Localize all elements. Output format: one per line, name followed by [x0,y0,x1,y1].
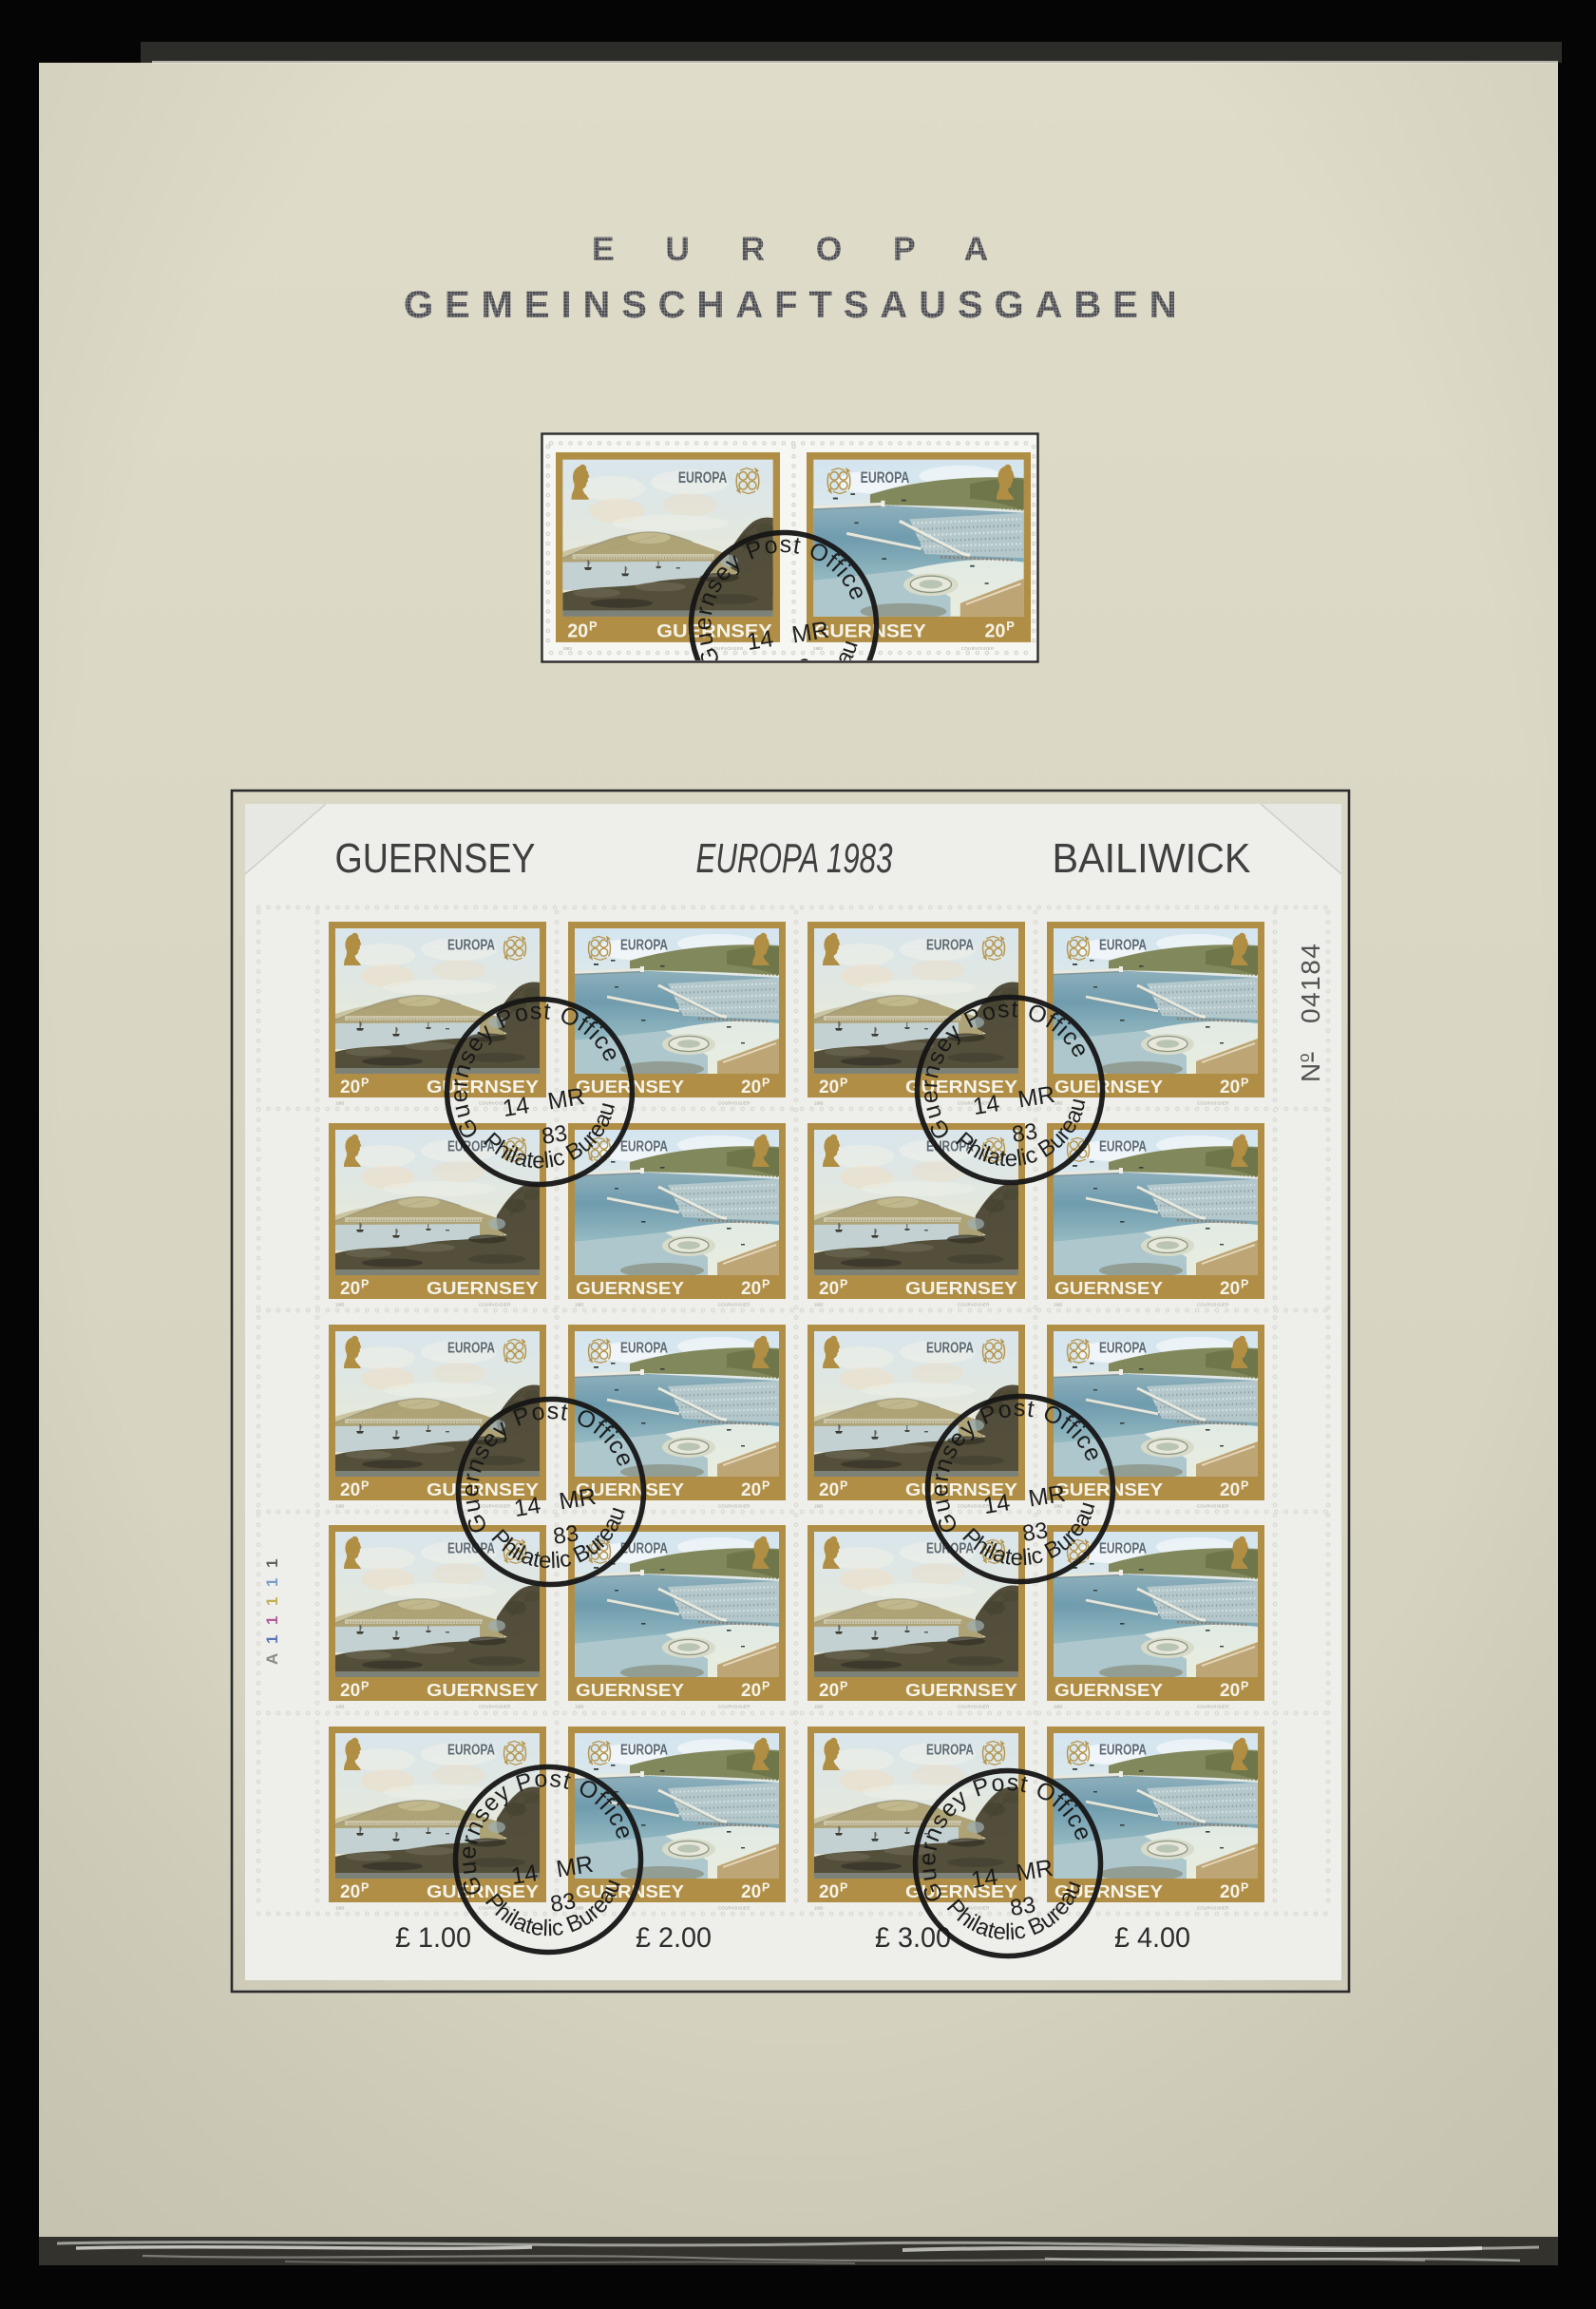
svg-text:EUROPA 1983: EUROPA 1983 [696,835,893,882]
svg-text:A: A [263,1653,281,1665]
svg-text:GEMEINSCHAFTSAUSGABEN: GEMEINSCHAFTSAUSGABEN [404,284,1188,326]
svg-text:N: N [1296,1061,1325,1082]
svg-text:1: 1 [263,1616,281,1625]
svg-text:£ 1.00: £ 1.00 [395,1922,471,1954]
svg-text:£ 4.00: £ 4.00 [1114,1922,1190,1954]
svg-text:GUERNSEY: GUERNSEY [335,835,536,882]
svg-text:1: 1 [263,1559,281,1568]
svg-text:1: 1 [263,1635,281,1644]
svg-text:EUROPA: EUROPA [592,230,1039,268]
svg-text:o: o [1295,1054,1313,1062]
svg-text:1: 1 [263,1578,281,1587]
svg-text:£ 2.00: £ 2.00 [636,1922,712,1954]
svg-text:1: 1 [263,1597,281,1606]
svg-text:04184: 04184 [1296,943,1325,1023]
svg-text:BAILIWICK: BAILIWICK [1053,835,1251,882]
